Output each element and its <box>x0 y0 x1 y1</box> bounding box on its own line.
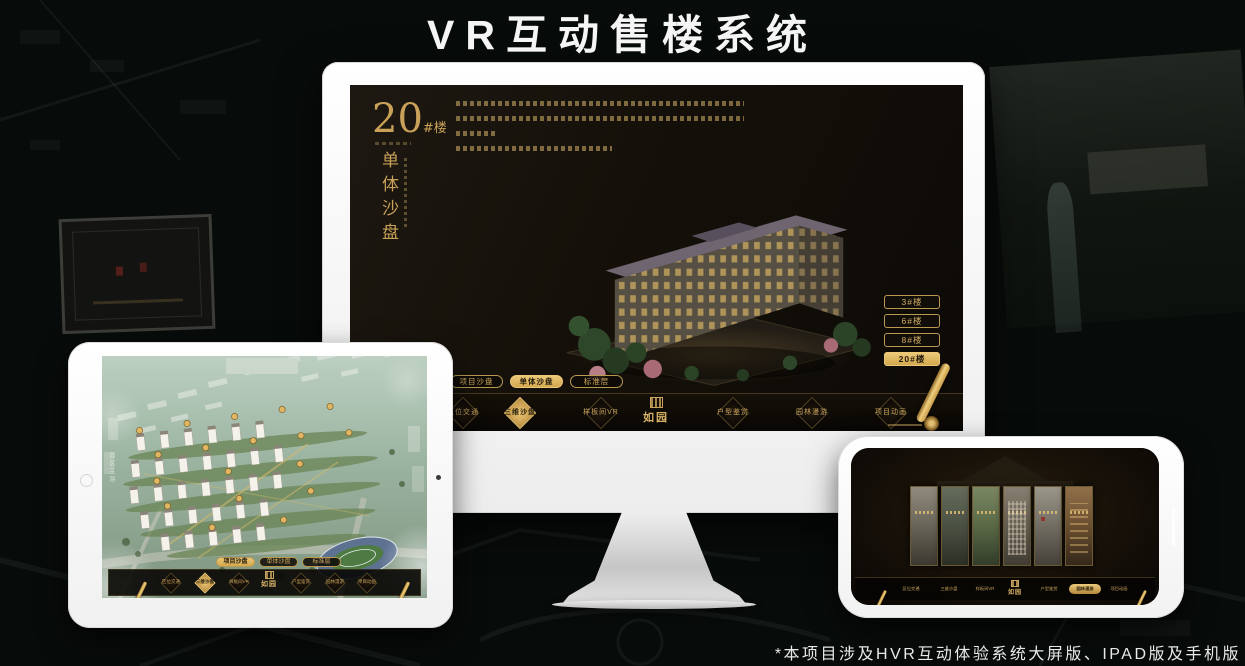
nav-item-showroom-vr[interactable]: 样板间VR <box>219 570 259 595</box>
scene-panel-3[interactable] <box>972 486 1000 566</box>
nav-item-project-film[interactable]: 项目动画 <box>347 570 387 595</box>
monitor-stand <box>555 511 753 605</box>
background-river <box>1045 182 1081 333</box>
nav-item-location[interactable]: 区位交通 <box>893 578 929 600</box>
building-model-viewport[interactable] <box>538 171 876 399</box>
phone-screen[interactable]: 区位交通 三维沙盘 样板间VR 如园 户型鉴赏 园林漫游 项目动画 <box>851 448 1159 605</box>
road-label: 园区三路 <box>107 452 116 484</box>
floor-button-8[interactable]: 8#楼 <box>884 333 940 347</box>
tab-standard-floor[interactable]: 标准层 <box>302 557 341 567</box>
seal-icon <box>265 571 274 579</box>
tablet-screen[interactable]: 园区三路 项目沙盘 单体沙盘 标准层 区位交通 三维沙盘 样板间VR 如园 <box>102 356 427 598</box>
description-line <box>456 131 498 136</box>
tablet-bottom-nav: 区位交通 三维沙盘 样板间VR 如园 户型鉴赏 园林漫游 项目动画 <box>108 569 421 596</box>
scene-panel-4[interactable] <box>1003 486 1031 566</box>
description-line <box>456 101 744 106</box>
tab-project-sandtable[interactable]: 项目沙盘 <box>450 375 503 388</box>
scene-panel-2[interactable] <box>941 486 969 566</box>
view-tab-group: 项目沙盘 单体沙盘 标准层 <box>450 375 623 388</box>
background-building <box>1087 144 1208 194</box>
home-indicator[interactable] <box>1172 508 1175 546</box>
background-plaque <box>60 215 214 332</box>
scroll-quill-icon[interactable] <box>127 579 144 598</box>
floor-button-3[interactable]: 3#楼 <box>884 295 940 309</box>
screen-subtitle: 单体沙盘 <box>376 151 401 267</box>
screen-title-block: 20#楼 单体沙盘 <box>372 99 447 267</box>
description-paragraph <box>456 101 756 161</box>
description-line <box>456 116 744 121</box>
title-english-caption <box>375 142 411 145</box>
brand-logo: 如园 <box>254 571 284 589</box>
brand-logo: 如园 <box>634 396 678 425</box>
tab-single-sandtable[interactable]: 单体沙盘 <box>510 375 563 388</box>
nav-item-garden-roam[interactable]: 园林漫游 <box>780 394 844 431</box>
background-aerial-photo <box>989 50 1245 329</box>
seal-icon <box>1011 580 1019 587</box>
monitor-base <box>552 600 756 609</box>
nav-item-garden-roam[interactable]: 园林漫游 <box>1069 584 1101 594</box>
tab-project-sandtable[interactable]: 项目沙盘 <box>216 557 255 567</box>
tab-single-sandtable[interactable]: 单体沙盘 <box>259 557 298 567</box>
subtitle-english-caption <box>404 155 407 227</box>
nav-item-unit-plans[interactable]: 户型鉴赏 <box>1031 578 1067 600</box>
seal-icon <box>650 397 663 408</box>
footnote: *本项目涉及HVR互动体验系统大屏版、IPAD版及手机版 <box>775 640 1241 664</box>
nav-item-3d-sandtable[interactable]: 三维沙盘 <box>488 394 552 431</box>
tab-standard-floor[interactable]: 标准层 <box>570 375 623 388</box>
tablet-view-tab-group: 项目沙盘 单体沙盘 标准层 <box>216 557 341 567</box>
phone-bottom-nav: 区位交通 三维沙盘 样板间VR 如园 户型鉴赏 园林漫游 项目动画 <box>855 577 1155 600</box>
tablet-device: 园区三路 项目沙盘 单体沙盘 标准层 区位交通 三维沙盘 样板间VR 如园 <box>68 342 453 628</box>
description-line <box>456 146 612 151</box>
scroll-quill-icon[interactable] <box>1130 588 1144 605</box>
floor-button-6[interactable]: 6#楼 <box>884 314 940 328</box>
scene-panel-6[interactable] <box>1065 486 1093 566</box>
page-title: VR互动售楼系统 <box>0 1 1245 61</box>
nav-item-showroom-vr[interactable]: 样板间VR <box>569 394 633 431</box>
building-number: 20 <box>372 96 423 142</box>
building-number-suffix: #楼 <box>423 121 447 136</box>
scene-panel-1[interactable] <box>910 486 938 566</box>
scroll-quill-icon[interactable] <box>390 579 407 598</box>
phone-device: 区位交通 三维沙盘 样板间VR 如园 户型鉴赏 园林漫游 项目动画 <box>838 436 1184 618</box>
stage: VR互动售楼系统 20#楼 单体沙盘 <box>0 0 1245 666</box>
nav-item-unit-plans[interactable]: 户型鉴赏 <box>701 394 765 431</box>
nav-item-3d-sandtable[interactable]: 三维沙盘 <box>931 578 967 600</box>
scene-panel-5[interactable] <box>1034 486 1062 566</box>
scroll-quill-icon[interactable] <box>902 358 942 431</box>
nav-item-showroom-vr[interactable]: 样板间VR <box>967 578 1003 600</box>
scroll-quill-icon[interactable] <box>870 588 884 605</box>
brand-logo: 如园 <box>1001 580 1029 596</box>
tablet-camera-icon <box>436 475 441 480</box>
tablet-home-button[interactable] <box>80 474 93 487</box>
